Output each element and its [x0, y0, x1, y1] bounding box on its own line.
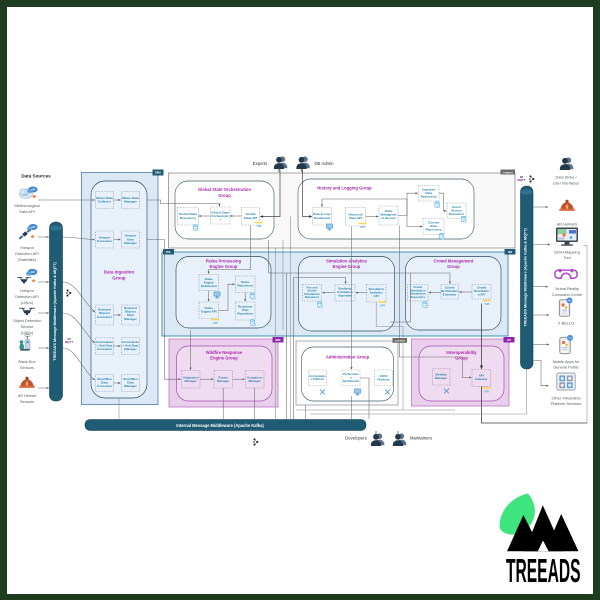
svg-text:Data & LogsDashboard: Data & LogsDashboard: [313, 212, 331, 220]
svg-text:Black BoxSensors: Black BoxSensors: [18, 359, 35, 370]
svg-text:Group: Group: [218, 193, 231, 198]
svg-text:HistoricalData API: HistoricalData API: [348, 212, 362, 220]
svg-text:MobilityManager: MobilityManager: [435, 373, 448, 381]
svg-text:Developers: Developers: [345, 436, 367, 441]
svg-text:AR HelmetSensors: AR HelmetSensors: [18, 393, 38, 404]
svg-text:API: API: [31, 271, 35, 274]
svg-text:Engine Group: Engine Group: [333, 264, 361, 269]
svg-text:GISH-MappingTool: GISH-MappingTool: [554, 250, 580, 261]
svg-text:Interoperability: Interoperability: [446, 350, 477, 355]
svg-text:WRE: WRE: [275, 339, 281, 342]
svg-text:Data Sources: Data Sources: [21, 174, 51, 179]
svg-text:AdaptationManager: AdaptationManager: [183, 376, 199, 384]
svg-text:Simulation Analytics: Simulation Analytics: [326, 259, 368, 264]
svg-text:Virtual RealityCommand Centre: Virtual RealityCommand Centre: [552, 286, 583, 297]
svg-text:COMMON: COMMON: [503, 172, 514, 174]
svg-text:RUL: RUL: [166, 251, 171, 254]
svg-text:MeteorologicalData API: MeteorologicalData API: [14, 203, 39, 214]
svg-text:Data Sinks /User Interfaces: Data Sinks /User Interfaces: [553, 175, 579, 186]
svg-text:HotspotDetection API(Satellite: HotspotDetection API(Satellites): [15, 245, 39, 262]
svg-text:Meteo DataCollector: Meteo DataCollector: [96, 196, 113, 204]
svg-text:Mobile Apps forGeneral Public: Mobile Apps forGeneral Public: [553, 359, 581, 370]
svg-text:Global State Orchestration: Global State Orchestration: [198, 187, 251, 192]
svg-text:TREEADS Message Middleware (Ap: TREEADS Message Middleware (Apache Kafka…: [524, 228, 528, 327]
svg-text:ActuationsManager: ActuationsManager: [247, 376, 263, 384]
svg-text:Rules Processing: Rules Processing: [206, 259, 242, 264]
svg-text:API: API: [23, 193, 28, 197]
svg-text:Engine Group: Engine Group: [210, 264, 238, 269]
svg-text:Group: Group: [447, 264, 460, 269]
svg-text:Commander Unit DataConsumer: Commander Unit DataConsumer: [96, 340, 113, 351]
svg-text:88MQTT: 88MQTT: [65, 337, 73, 344]
svg-text:HotspotDetection API(UAVs): HotspotDetection API(UAVs): [15, 288, 39, 305]
svg-text:SIM: SIM: [508, 251, 512, 254]
svg-text:COMMON: COMMON: [395, 341, 406, 343]
svg-text:API: API: [31, 189, 35, 192]
svg-text:Group: Group: [112, 276, 125, 281]
svg-text:DetectedObjectsDataManager: DetectedObjectsDataManager: [124, 306, 138, 321]
svg-text:Data Ingestion: Data Ingestion: [104, 270, 135, 275]
svg-text:TREEADS: TREEADS: [506, 552, 581, 589]
svg-text:SimilarityEstimationAlgorithm: SimilarityEstimationAlgorithm: [337, 287, 353, 298]
svg-text:Global StateRepository: Global StateRepository: [179, 212, 197, 220]
svg-text:Wildfire Response: Wildfire Response: [206, 350, 243, 355]
svg-text:Object DetectionService(UAVs): Object DetectionService(UAVs): [13, 318, 42, 335]
svg-text:Administration Group: Administration Group: [326, 355, 370, 360]
svg-text:INT: INT: [507, 339, 511, 342]
svg-text:DING: DING: [155, 172, 161, 175]
svg-text:Experts: Experts: [253, 161, 268, 166]
svg-text:Orchestration Platform: Orchestration Platform: [309, 374, 326, 381]
svg-text:Meteo DataManager: Meteo DataManager: [122, 196, 139, 204]
svg-text:Internal Message Middleware (A: Internal Message Middleware (Apache Kafk…: [176, 423, 264, 428]
svg-text:AR Helmets: AR Helmets: [557, 222, 578, 227]
svg-text:88MQTT: 88MQTT: [517, 175, 525, 182]
svg-text:Commander Unit DataManager: Commander Unit DataManager: [122, 340, 139, 351]
svg-text:History and Logging Group: History and Logging Group: [317, 186, 372, 191]
svg-text:Other TREEADSPlatform Services: Other TREEADSPlatform Services: [551, 396, 582, 407]
svg-text:Engine Group: Engine Group: [210, 356, 238, 361]
svg-text:DB Admin: DB Admin: [314, 161, 334, 166]
svg-text:API: API: [31, 226, 35, 229]
svg-text:Maintainers: Maintainers: [410, 436, 432, 441]
svg-text:Group: Group: [455, 356, 468, 361]
svg-text:Crowd Management: Crowd Management: [434, 259, 474, 264]
svg-text:X-BELLO: X-BELLO: [558, 321, 574, 326]
svg-text:TREEADS Message Middleware (Ap: TREEADS Message Middleware (Apache Kafka…: [53, 262, 57, 361]
